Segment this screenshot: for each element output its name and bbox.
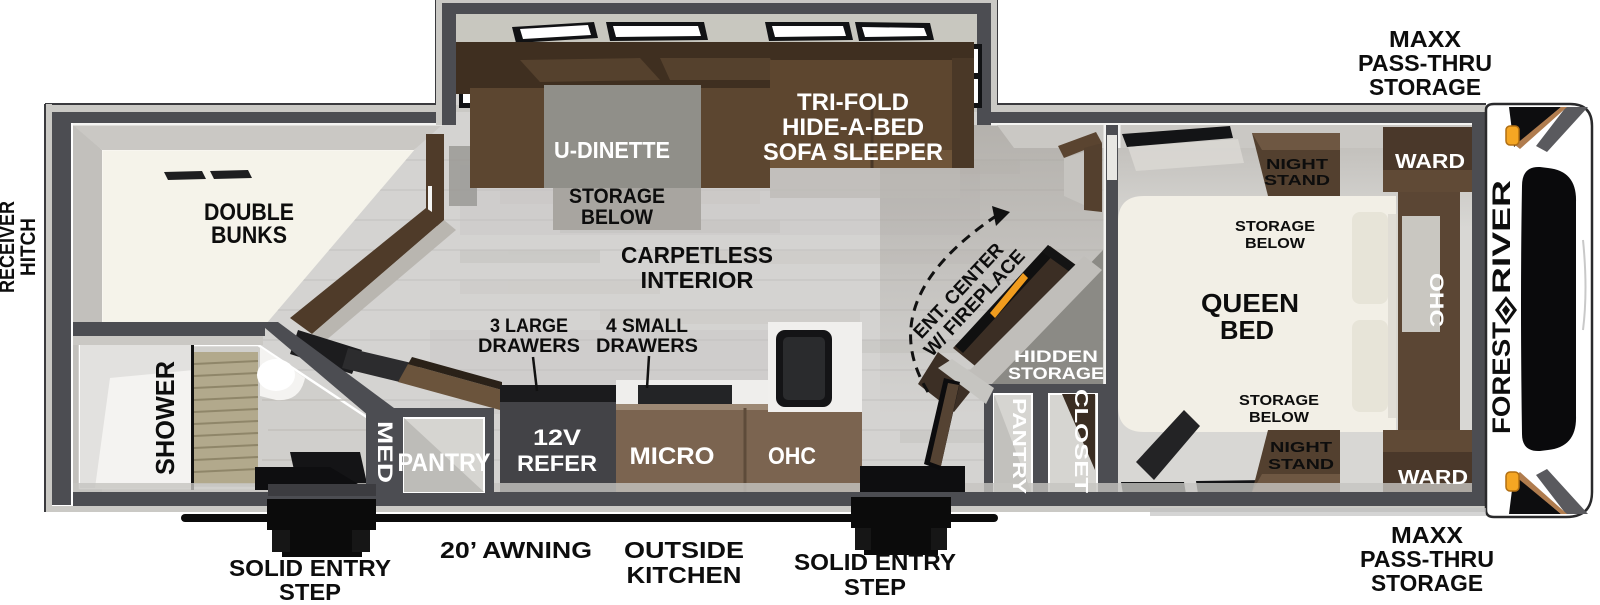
svg-text:WARD: WARD	[1398, 467, 1468, 489]
svg-text:PANTRY: PANTRY	[398, 449, 491, 477]
svg-text:WARD: WARD	[1395, 151, 1465, 173]
svg-text:PASS-THRU: PASS-THRU	[1360, 546, 1494, 572]
svg-text:12V: 12V	[533, 425, 581, 450]
svg-text:PANTRY: PANTRY	[1009, 398, 1029, 494]
svg-text:STAND: STAND	[1268, 456, 1334, 473]
svg-text:BUNKS: BUNKS	[211, 222, 287, 249]
svg-text:SOLID ENTRY: SOLID ENTRY	[794, 549, 956, 575]
svg-text:MICRO: MICRO	[630, 443, 715, 470]
svg-text:MAXX: MAXX	[1391, 522, 1464, 548]
svg-text:STORAGE: STORAGE	[1371, 570, 1483, 596]
svg-text:HITCH: HITCH	[17, 218, 40, 276]
svg-text:DRAWERS: DRAWERS	[596, 336, 698, 357]
svg-text:HIDE-A-BED: HIDE-A-BED	[782, 114, 924, 141]
svg-text:RIVER: RIVER	[1488, 180, 1516, 294]
svg-text:STORAGE: STORAGE	[1235, 218, 1315, 235]
svg-text:SOFA SLEEPER: SOFA SLEEPER	[763, 139, 943, 166]
svg-text:CARPETLESS: CARPETLESS	[621, 242, 773, 268]
svg-text:OHC: OHC	[768, 443, 816, 470]
svg-text:MED: MED	[373, 421, 396, 483]
svg-text:CLOSET: CLOSET	[1071, 389, 1091, 493]
svg-text:BED: BED	[1220, 315, 1274, 345]
svg-text:BELOW: BELOW	[1245, 235, 1306, 252]
svg-text:STORAGE: STORAGE	[1369, 74, 1481, 100]
svg-text:KITCHEN: KITCHEN	[627, 562, 742, 588]
svg-text:QUEEN: QUEEN	[1201, 288, 1299, 318]
svg-text:20’ AWNING: 20’ AWNING	[440, 537, 592, 563]
svg-text:REFER: REFER	[517, 451, 597, 476]
svg-text:STORAGE: STORAGE	[1008, 364, 1104, 383]
svg-text:NIGHT: NIGHT	[1270, 439, 1332, 456]
svg-text:SOLID ENTRY: SOLID ENTRY	[229, 555, 391, 581]
svg-text:MAXX: MAXX	[1389, 26, 1462, 52]
svg-text:SHOWER: SHOWER	[150, 361, 180, 475]
svg-text:OHC: OHC	[1425, 273, 1446, 327]
svg-text:FOREST: FOREST	[1488, 322, 1516, 434]
svg-text:DRAWERS: DRAWERS	[478, 336, 580, 357]
svg-text:BELOW: BELOW	[581, 206, 653, 229]
svg-text:BELOW: BELOW	[1249, 409, 1310, 426]
svg-text:4 SMALL: 4 SMALL	[606, 316, 688, 337]
svg-text:STAND: STAND	[1264, 172, 1330, 189]
svg-text:U-DINETTE: U-DINETTE	[554, 137, 670, 163]
svg-text:3 LARGE: 3 LARGE	[490, 316, 568, 337]
svg-text:OUTSIDE: OUTSIDE	[624, 537, 744, 563]
svg-text:STEP: STEP	[279, 579, 341, 605]
svg-text:STEP: STEP	[844, 574, 906, 600]
svg-text:INTERIOR: INTERIOR	[641, 267, 754, 293]
svg-text:NIGHT: NIGHT	[1266, 156, 1328, 173]
svg-text:STORAGE: STORAGE	[569, 185, 665, 208]
svg-text:STORAGE: STORAGE	[1239, 392, 1319, 409]
svg-text:TRI-FOLD: TRI-FOLD	[797, 89, 909, 116]
svg-text:PASS-THRU: PASS-THRU	[1358, 50, 1492, 76]
